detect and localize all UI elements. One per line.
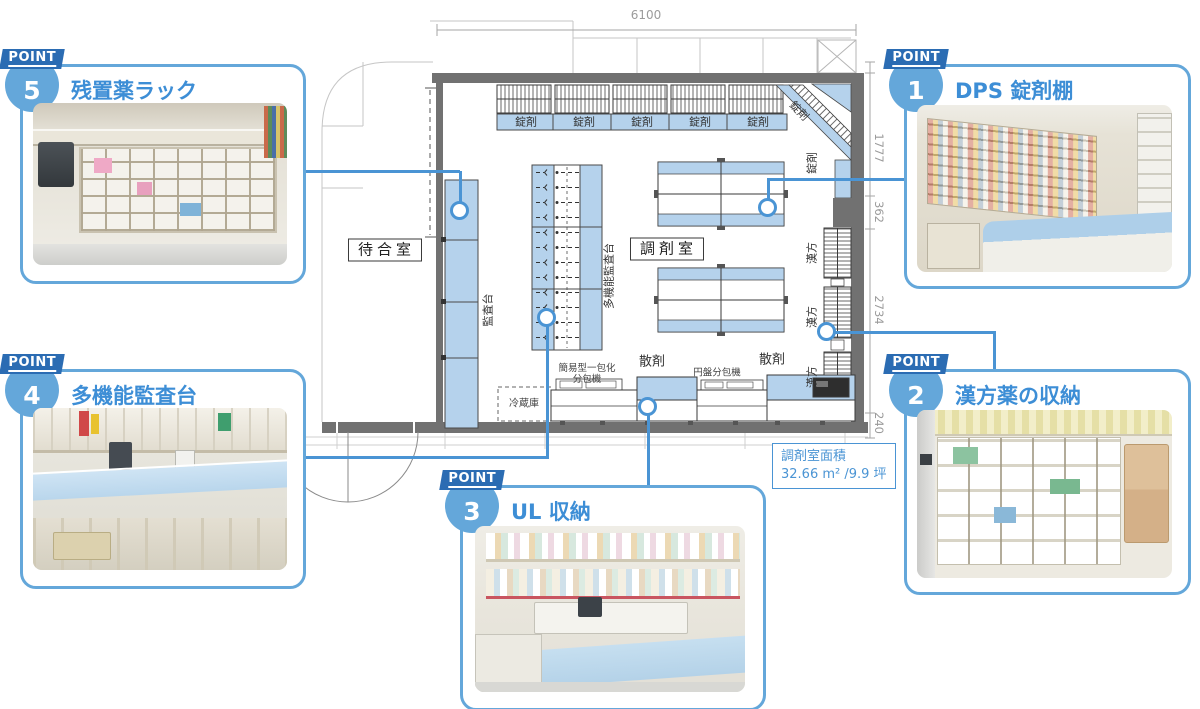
area-box-title: 調剤室面積	[781, 448, 887, 466]
bench-machines	[498, 375, 855, 425]
leader-line-point5-v	[459, 171, 462, 204]
photo-multi-audit-counter	[33, 408, 287, 570]
service-box	[833, 198, 853, 227]
photo-p2-box2	[1050, 479, 1081, 494]
area-box: 調剤室面積 32.66 m² /9.9 坪	[772, 443, 896, 489]
photo-p2-box3	[994, 507, 1017, 522]
label-multi-audit: 多機能監査台	[604, 243, 615, 309]
label-simple-packer-line2: 分包機	[573, 374, 602, 385]
label-tablet-4: 錠剤	[689, 117, 711, 128]
point4-ribbon: POINT	[0, 354, 65, 374]
point2-ribbon: POINT	[883, 354, 949, 374]
point2-title: 漢方薬の収納	[955, 380, 1081, 410]
point4-title: 多機能監査台	[71, 380, 197, 410]
area-box-value: 32.66 m² /9.9 坪	[781, 466, 887, 484]
point3-ribbon: POINT	[439, 470, 505, 490]
point3-title: UL 収納	[511, 496, 591, 526]
point2-word: POINT	[892, 355, 940, 372]
photo-p4-accent3	[218, 413, 231, 431]
photo-p4-basket	[53, 532, 111, 560]
callout-point1: 1 POINT DPS 錠剤棚	[904, 64, 1191, 289]
leader-dot-point1	[758, 198, 777, 217]
photo-p4-accent1	[79, 411, 89, 435]
label-disc-packer: 円盤分包機	[693, 369, 741, 380]
photo-p3-floor	[475, 682, 745, 692]
point4-word: POINT	[8, 355, 56, 372]
photo-p4-device1	[109, 442, 132, 470]
leader-line-point1-h	[770, 178, 904, 181]
photo-p3-machines	[534, 602, 687, 634]
photo-kampo-storage	[917, 410, 1172, 578]
point5-word: POINT	[8, 50, 56, 67]
photo-p4-counter	[33, 460, 287, 501]
photo-dps-tablet-shelf	[917, 105, 1172, 272]
dim-right-3: 2734	[872, 295, 884, 324]
photo-p1-counter	[983, 212, 1172, 272]
leader-dot-point4	[537, 308, 556, 327]
dim-right-1: 1777	[872, 133, 884, 162]
label-kampo-3: 漢方	[807, 366, 818, 388]
page: 6100 1777 362 2734 240 錠剤 錠剤 錠剤 錠剤 錠剤 錠剤…	[0, 0, 1200, 709]
photo-p2-frame	[917, 410, 935, 578]
leader-line-point2-h	[833, 331, 996, 334]
point4-number: 4	[5, 383, 59, 408]
leader-dot-point2	[817, 322, 836, 341]
label-dispensing-room: 調剤室	[630, 238, 704, 261]
photo-p1-cabinet	[1137, 113, 1172, 215]
leader-line-point4-v	[546, 326, 549, 458]
label-powder-right: 散剤	[759, 354, 785, 367]
leader-line-point3-v	[647, 414, 650, 488]
photo-p5-printer	[38, 142, 74, 187]
point3-word: POINT	[448, 471, 496, 488]
photo-p2-paper-bags	[1124, 444, 1169, 543]
dim-right-4: 240	[872, 412, 884, 434]
photo-p2-box1	[953, 447, 979, 464]
photo-p3-monitor	[578, 597, 602, 617]
label-kampo-2: 漢方	[807, 306, 818, 328]
point1-number: 1	[889, 78, 943, 103]
photo-p4-shelf	[33, 408, 287, 453]
photo-ul-storage	[475, 526, 745, 692]
dim-right-2: 362	[872, 201, 884, 223]
label-waiting-room: 待合室	[348, 239, 422, 262]
photo-p1-drawers	[927, 118, 1097, 221]
label-audit-counter: 監査台	[483, 294, 494, 327]
callout-point2: 2 POINT 漢方薬の収納	[904, 369, 1191, 595]
label-tablet-5: 錠剤	[747, 117, 769, 128]
callout-point5: 5 POINT 残置薬ラック	[20, 64, 306, 284]
point1-title: DPS 錠剤棚	[955, 75, 1073, 105]
label-tablet-wall: 錠剤	[807, 152, 818, 174]
leader-line-point4-h	[298, 456, 549, 459]
dim-top: 6100	[631, 9, 662, 21]
photo-p3-shelf1	[486, 533, 740, 563]
photo-p5-floor	[33, 244, 287, 265]
label-tablet-2: 錠剤	[573, 117, 595, 128]
label-refrigerator: 冷蔵庫	[509, 398, 539, 410]
label-powder-left: 散剤	[639, 356, 665, 369]
photo-p3-counter	[507, 636, 745, 689]
label-simple-packer: 簡易型一包化 分包機	[558, 364, 615, 386]
photo-p5-box1	[94, 158, 112, 173]
point2-number: 2	[889, 383, 943, 408]
photo-p5-box2	[137, 182, 152, 195]
label-tablet-1: 錠剤	[515, 117, 537, 128]
label-kampo-1: 漢方	[807, 242, 818, 264]
leader-line-point5-h	[298, 170, 460, 173]
photo-p2-sign	[920, 454, 933, 466]
leader-dot-point5	[450, 201, 469, 220]
callout-point3: 3 POINT UL 収納	[460, 485, 766, 709]
point5-ribbon: POINT	[0, 49, 65, 69]
photo-p5-box3	[180, 203, 200, 216]
point5-title: 残置薬ラック	[71, 75, 197, 105]
column-x	[818, 40, 856, 73]
point5-number: 5	[5, 78, 59, 103]
photo-p4-accent2	[91, 414, 99, 433]
photo-p3-shelf2	[486, 569, 740, 599]
photo-p2-topshelf	[917, 410, 1172, 436]
label-tablet-3: 錠剤	[631, 117, 653, 128]
dashed-partition	[425, 88, 436, 237]
point1-word: POINT	[892, 50, 940, 67]
photo-p5-books	[264, 106, 287, 158]
photo-p1-cart	[927, 223, 980, 268]
callout-point4: 4 POINT 多機能監査台	[20, 369, 306, 589]
leader-dot-point3	[638, 397, 657, 416]
point1-ribbon: POINT	[883, 49, 949, 69]
leader-line-point2-v	[993, 331, 996, 371]
label-simple-packer-line1: 簡易型一包化	[558, 363, 615, 374]
diagonal-shelf	[776, 84, 851, 198]
photo-leftover-medicine-rack	[33, 103, 287, 265]
point3-number: 3	[445, 499, 499, 524]
